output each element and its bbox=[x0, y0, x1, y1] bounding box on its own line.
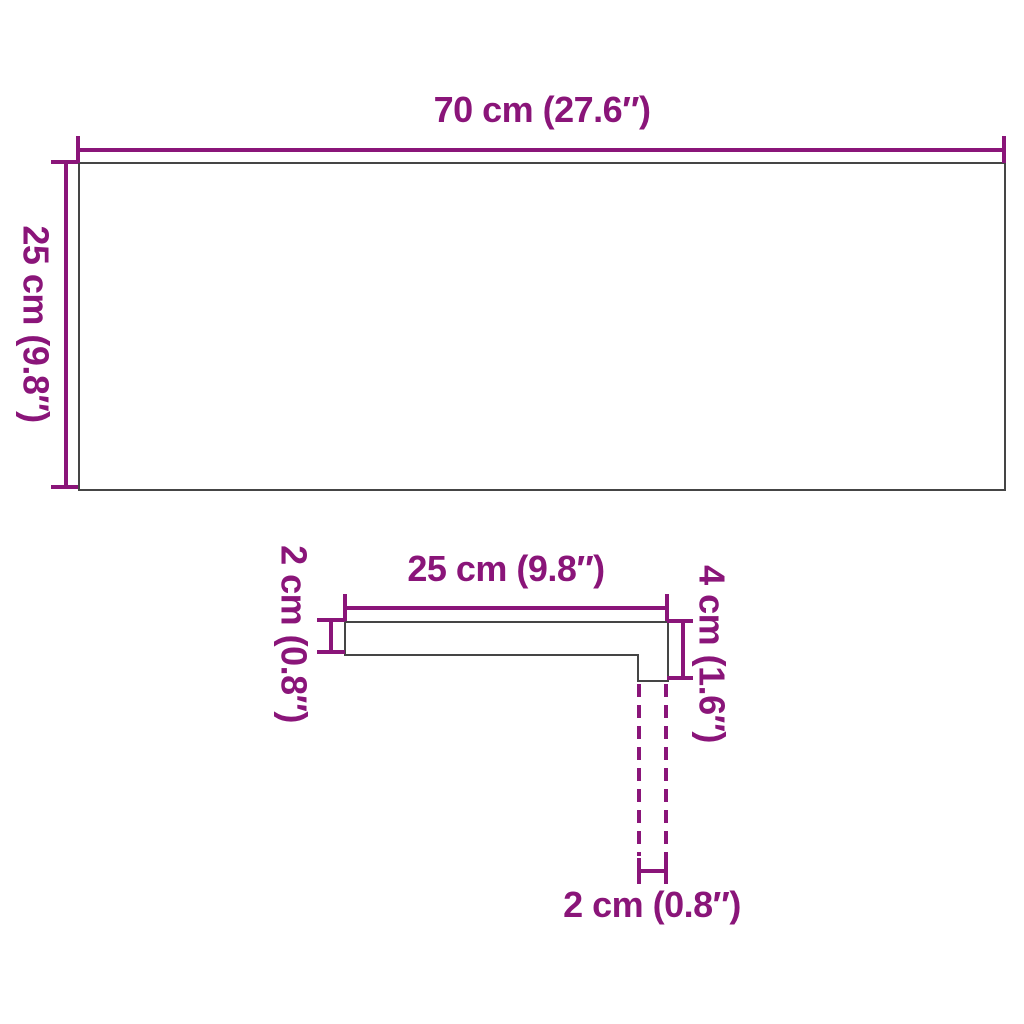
dimension-tick bbox=[76, 136, 80, 163]
dimension-tick bbox=[667, 676, 693, 680]
dimension-tick bbox=[317, 650, 345, 654]
dimension-tick bbox=[1002, 136, 1006, 163]
profile-thickness-dimension-line bbox=[329, 620, 333, 654]
profile-width-label: 25 cm (9.8″) bbox=[345, 546, 667, 591]
dimension-tick bbox=[637, 858, 641, 884]
profile-width-dimension-line bbox=[345, 606, 667, 610]
dashed-extension-line bbox=[664, 684, 668, 862]
top-view-height-dimension-line bbox=[64, 162, 68, 489]
profile-height-label: 4 cm (1.6″) bbox=[690, 565, 735, 743]
dimension-tick bbox=[667, 619, 693, 623]
dimension-tick bbox=[51, 160, 78, 164]
dashed-extension-line bbox=[637, 684, 641, 856]
dimension-tick bbox=[665, 594, 669, 621]
dimension-tick bbox=[664, 858, 668, 884]
top-view-width-dimension-line bbox=[78, 148, 1006, 152]
dimension-tick bbox=[343, 594, 347, 621]
dimension-diagram: 70 cm (27.6″) 25 cm (9.8″) 25 cm (9.8″) … bbox=[0, 0, 1024, 1024]
profile-outline bbox=[344, 621, 670, 683]
top-view-height-label: 25 cm (9.8″) bbox=[14, 225, 59, 422]
profile-height-dimension-line bbox=[681, 621, 685, 680]
top-view-outline bbox=[78, 162, 1006, 491]
dimension-tick bbox=[51, 485, 78, 489]
dimension-tick bbox=[317, 618, 345, 622]
profile-lip-width-label: 2 cm (0.8″) bbox=[502, 882, 802, 927]
profile-thickness-label: 2 cm (0.8″) bbox=[272, 545, 317, 723]
top-view-width-label: 70 cm (27.6″) bbox=[78, 87, 1006, 132]
